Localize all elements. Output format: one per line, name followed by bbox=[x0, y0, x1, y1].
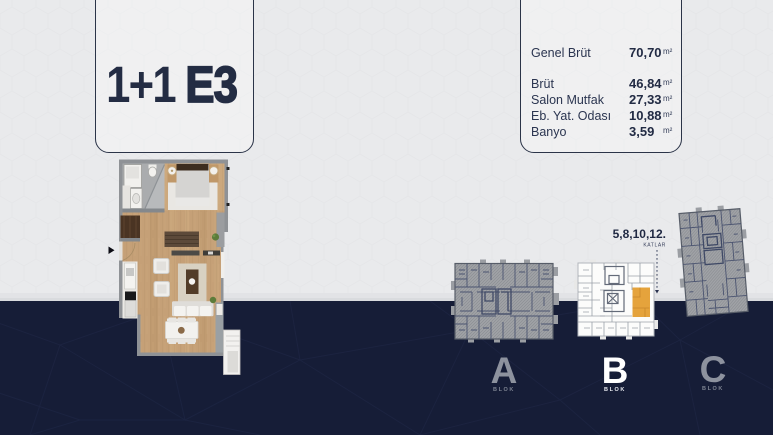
svg-text:5,8,10,12.: 5,8,10,12. bbox=[613, 227, 666, 241]
svg-text:KATLAR: KATLAR bbox=[643, 243, 666, 249]
